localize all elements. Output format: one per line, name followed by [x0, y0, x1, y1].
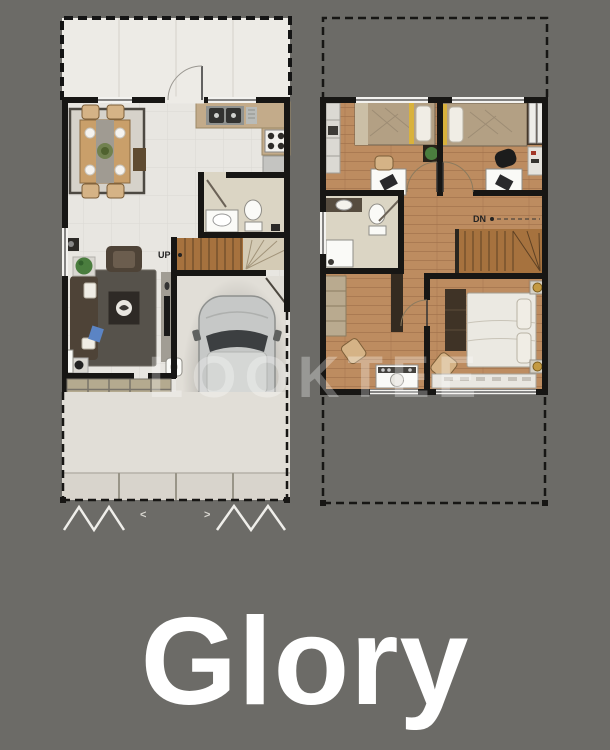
gate-chevron-left [64, 507, 124, 530]
toilet [369, 204, 385, 224]
dn-label: DN [473, 214, 486, 224]
dresser [445, 289, 466, 351]
up-label: UP [158, 250, 171, 260]
gate-chevron-right [217, 506, 285, 530]
dining-bench [133, 148, 146, 171]
floor-plan-poster: UP [0, 0, 610, 750]
desk-chair-1 [375, 156, 393, 170]
floor-plan-canvas: UP [0, 0, 610, 750]
plant [425, 147, 438, 160]
staircase-up: UP [158, 238, 290, 270]
dining-chair [107, 184, 124, 198]
lamp [533, 283, 542, 292]
project-title: Glory [141, 593, 470, 731]
dining-chair [107, 105, 124, 119]
terrace [62, 18, 290, 100]
bathroom-upper [326, 196, 400, 268]
tv [164, 296, 170, 336]
gate-markers: < > [64, 506, 285, 530]
toilet [245, 200, 262, 220]
plant [76, 258, 93, 275]
roof-outline-top [323, 18, 547, 100]
bathroom-ground [204, 178, 284, 232]
dining-area [70, 105, 146, 198]
gate-arrow-right: > [204, 509, 210, 521]
roof-outline-bottom [320, 397, 548, 506]
dining-chair [82, 184, 99, 198]
dining-chair [82, 105, 99, 119]
lamp [533, 362, 542, 371]
watermark-text: LOOKTEE [148, 345, 484, 410]
gate-arrow-left: < [140, 509, 146, 521]
stove [265, 130, 287, 152]
ground-floor-plan: UP [60, 18, 292, 530]
upper-floor-plan: DN [320, 18, 548, 506]
